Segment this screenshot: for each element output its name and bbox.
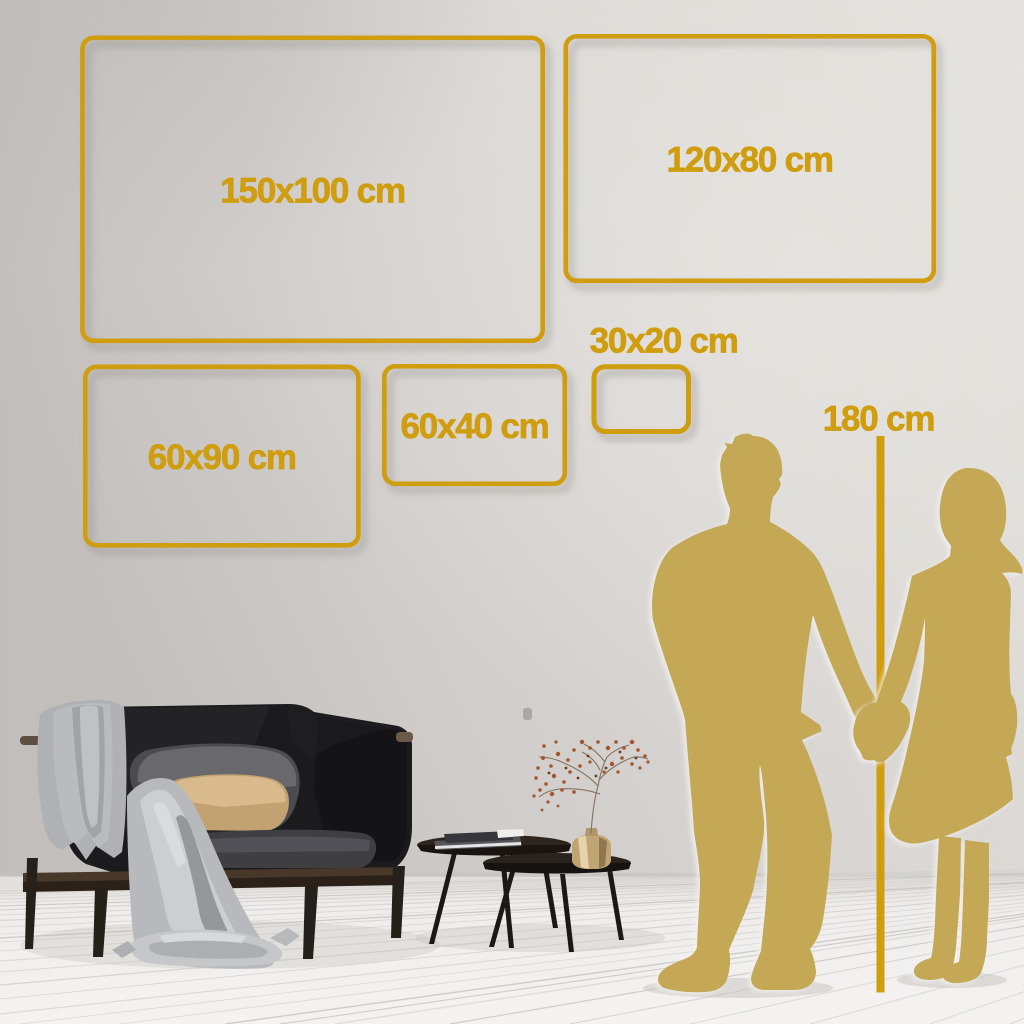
svg-text:60x90 cm: 60x90 cm [148, 438, 296, 477]
svg-text:150x100 cm: 150x100 cm [220, 171, 405, 210]
svg-text:60x40 cm: 60x40 cm [400, 407, 548, 446]
svg-text:180 cm: 180 cm [823, 399, 935, 438]
svg-text:30x20 cm: 30x20 cm [590, 321, 738, 360]
svg-text:120x80 cm: 120x80 cm [667, 140, 833, 179]
